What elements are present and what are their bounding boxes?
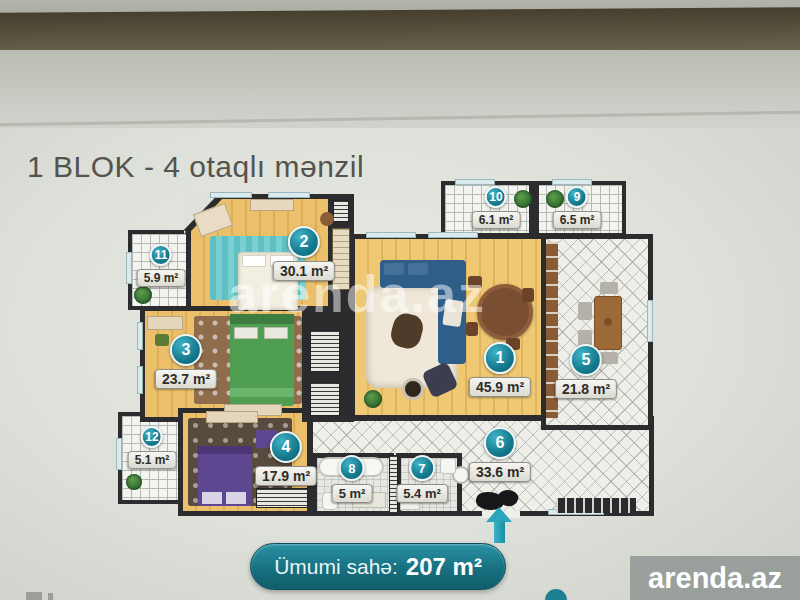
room-badge-9: 96.5 m² bbox=[553, 186, 602, 229]
window bbox=[116, 438, 122, 470]
edge-smudge bbox=[48, 593, 53, 600]
pot bbox=[320, 212, 334, 226]
table-knob bbox=[604, 318, 612, 326]
room-number: 1 bbox=[484, 342, 516, 374]
window bbox=[428, 232, 478, 238]
room-number: 10 bbox=[485, 186, 507, 208]
pillow bbox=[264, 327, 288, 339]
total-area-label: Ümumi sahə: bbox=[274, 555, 398, 579]
room-number: 9 bbox=[566, 186, 588, 208]
bed-base bbox=[226, 492, 246, 504]
hall-cabinet bbox=[556, 498, 636, 513]
room-badge-6: 633.6 m² bbox=[469, 427, 531, 482]
room-number: 11 bbox=[150, 244, 172, 266]
room-number: 12 bbox=[141, 426, 163, 448]
chair bbox=[522, 288, 534, 302]
shelf bbox=[206, 411, 258, 423]
plan-title: 1 BLOK - 4 otaqlı mənzil bbox=[27, 150, 364, 184]
room-number: 4 bbox=[270, 431, 302, 463]
room-area-label: 23.7 m² bbox=[155, 369, 217, 389]
window bbox=[455, 179, 495, 185]
room-badge-12: 125.1 m² bbox=[128, 426, 177, 469]
room-badge-5: 521.8 m² bbox=[555, 344, 617, 399]
window bbox=[137, 322, 143, 350]
room-area-label: 6.5 m² bbox=[553, 211, 602, 229]
plant-icon bbox=[126, 474, 142, 490]
watermark-center: arenda.az bbox=[228, 264, 486, 324]
room-number: 3 bbox=[170, 334, 202, 366]
desk bbox=[147, 316, 183, 330]
window bbox=[137, 366, 143, 394]
entrance-arrow-icon bbox=[486, 507, 512, 522]
room-badge-1: 145.9 m² bbox=[469, 342, 531, 397]
vent-shaft bbox=[310, 330, 340, 372]
vent-shaft bbox=[310, 382, 340, 416]
room-badge-8: 85 m² bbox=[332, 455, 373, 503]
floorplan-photo: 1 BLOK - 4 otaqlı mənzil bbox=[0, 0, 800, 600]
watermark-corner: arenda.az bbox=[630, 556, 800, 600]
room-number: 8 bbox=[339, 455, 365, 481]
room-area-label: 45.9 m² bbox=[469, 377, 531, 397]
side-table bbox=[402, 378, 424, 400]
vent-shaft bbox=[333, 200, 349, 222]
room-number: 6 bbox=[484, 427, 516, 459]
room-area-label: 6.1 m² bbox=[472, 211, 521, 229]
room-area-label: 33.6 m² bbox=[469, 462, 531, 482]
blanket-fold bbox=[230, 388, 294, 397]
room-number: 7 bbox=[409, 455, 435, 481]
wall-stub bbox=[529, 181, 539, 237]
room-badge-10: 106.1 m² bbox=[472, 186, 521, 229]
window bbox=[366, 232, 416, 238]
chair bbox=[600, 282, 618, 294]
room-badge-3: 323.7 m² bbox=[155, 334, 217, 389]
total-area-badge: Ümumi sahə: 207 m² bbox=[250, 543, 506, 590]
room-area-label: 17.9 m² bbox=[255, 466, 317, 486]
window bbox=[647, 300, 653, 342]
bed-base bbox=[202, 492, 222, 504]
plant-icon bbox=[364, 390, 382, 408]
room-number: 5 bbox=[570, 344, 602, 376]
window bbox=[126, 252, 132, 284]
room-area-label: 5.1 m² bbox=[128, 451, 177, 469]
bench bbox=[250, 199, 294, 211]
room-badge-4: 417.9 m² bbox=[255, 431, 317, 486]
room-number: 2 bbox=[288, 226, 320, 258]
total-area-value: 207 m² bbox=[406, 553, 482, 581]
room-badge-11: 115.9 m² bbox=[137, 244, 186, 287]
plant-icon bbox=[134, 286, 152, 304]
room-badge-7: 75.4 m² bbox=[396, 455, 448, 503]
room-area-label: 5.4 m² bbox=[396, 484, 448, 503]
room-area-label: 21.8 m² bbox=[555, 379, 617, 399]
room-area-label: 5 m² bbox=[332, 484, 373, 503]
window bbox=[210, 192, 252, 198]
chair bbox=[466, 322, 478, 336]
room-area-label: 5.9 m² bbox=[137, 269, 186, 287]
bookshelf-hatch bbox=[256, 488, 308, 508]
edge-smudge bbox=[26, 592, 42, 600]
window bbox=[552, 179, 592, 185]
window bbox=[268, 192, 310, 198]
headboard bbox=[198, 446, 252, 454]
chair bbox=[578, 302, 592, 320]
pillow bbox=[234, 327, 258, 339]
entrance-arrow-shaft bbox=[494, 521, 505, 543]
